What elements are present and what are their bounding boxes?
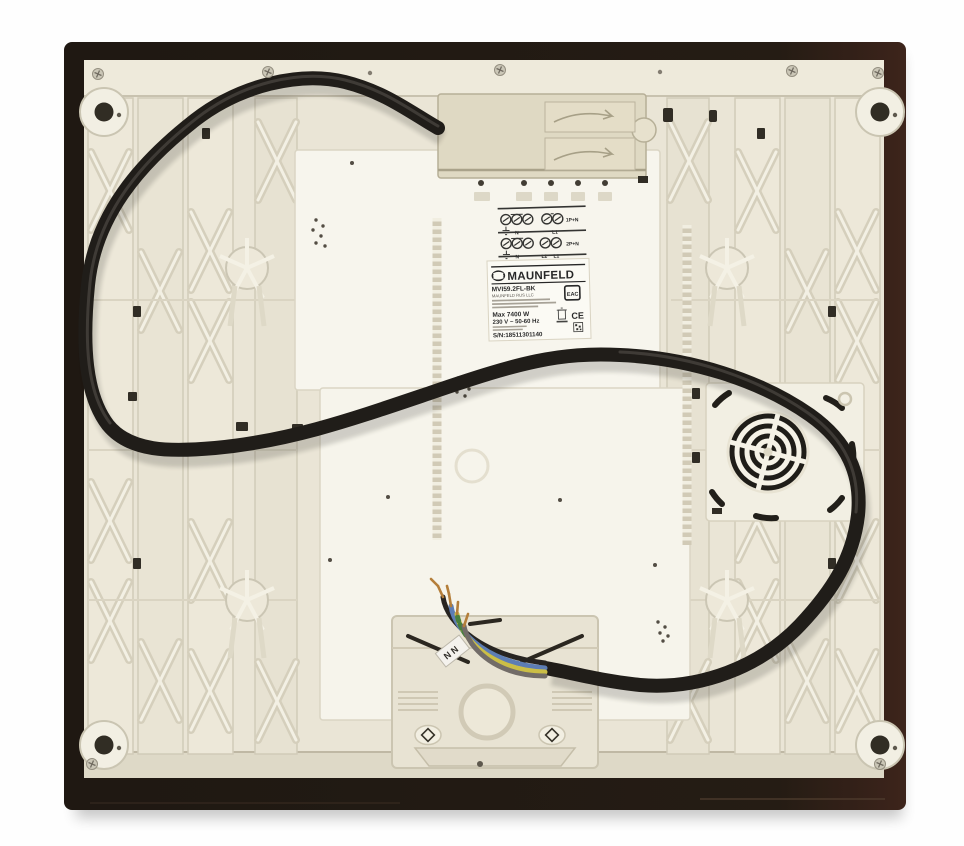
hob-underside-illustration: N L1 1P+N N L2 L1 2P+N MAUNFELD MVI59.2F…: [0, 0, 964, 846]
light-overlay: [64, 42, 906, 810]
product-photo: N L1 1P+N N L2 L1 2P+N MAUNFELD MVI59.2F…: [0, 0, 964, 846]
